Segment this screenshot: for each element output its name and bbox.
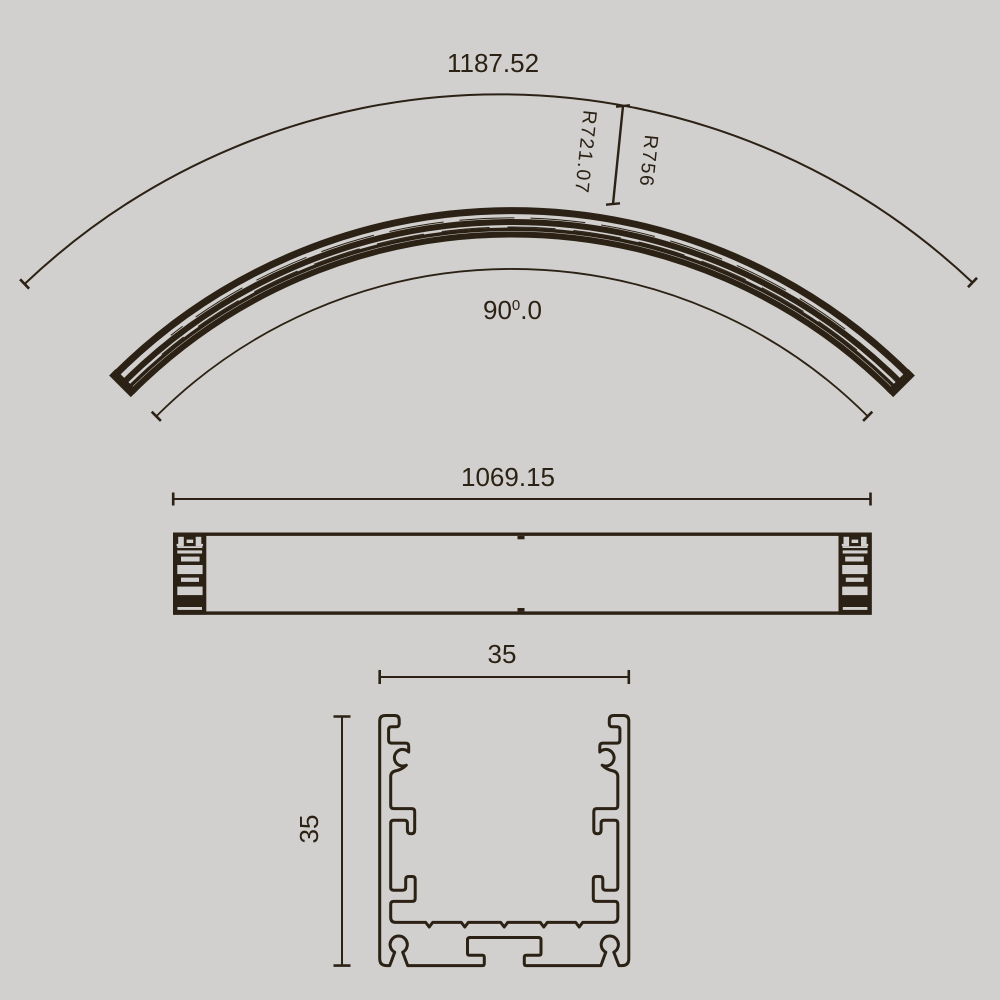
svg-text:35: 35 [294, 815, 324, 844]
svg-text:1069.15: 1069.15 [461, 462, 555, 492]
svg-text:1187.52: 1187.52 [447, 48, 539, 78]
svg-text:35: 35 [488, 639, 517, 669]
